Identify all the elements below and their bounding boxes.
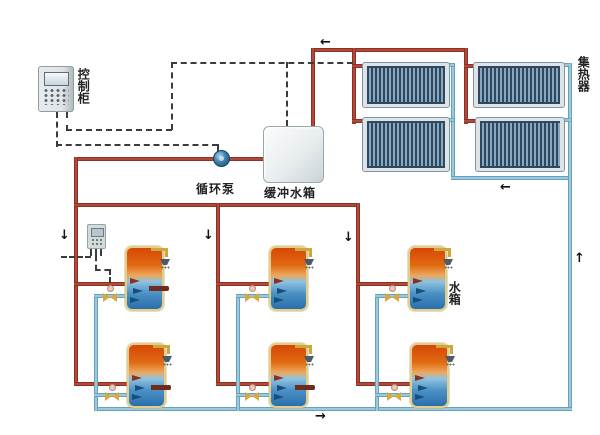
valve: [245, 285, 259, 302]
hot-inflow-arrow: [274, 375, 284, 381]
hot-inflow-arrow: [413, 278, 423, 284]
wall-controller-keys: [91, 238, 103, 246]
shower-icon: [295, 343, 317, 371]
tank-outlet-stub: [295, 385, 315, 390]
water-wave: [133, 288, 143, 294]
hot-pipe-left-riser: [74, 157, 78, 386]
control-wire: [90, 249, 92, 256]
label-circulation-pump: 循环泵: [196, 180, 235, 197]
label-control-cabinet: 控制柜: [76, 68, 89, 104]
hot-inflow-arrow: [274, 278, 284, 284]
hot-pipe-branch-tank: [74, 382, 132, 386]
shower-icon: [434, 246, 456, 274]
valve: [387, 384, 401, 401]
solar-collector-panel: [362, 62, 450, 108]
hot-inflow-arrow: [132, 375, 142, 381]
flow-arrow-down: ↓: [343, 231, 354, 244]
valve: [385, 285, 399, 302]
tank-outlet-stub: [151, 385, 171, 390]
control-wire: [95, 269, 110, 271]
control-wire-to-pump: [56, 144, 218, 146]
flow-arrow-left: ←: [500, 181, 511, 194]
collector-tubes: [480, 121, 560, 168]
solar-collector-panel: [362, 117, 450, 172]
water-wave: [130, 297, 140, 303]
flow-arrow-left: ←: [320, 36, 331, 49]
valve: [103, 285, 117, 302]
solar-collector-panel: [473, 62, 565, 108]
hot-pipe-collector-left-drop: [352, 48, 356, 124]
circulation-pump: [213, 150, 230, 167]
control-wire-to-pipe-sensor: [61, 256, 91, 258]
water-wave: [415, 394, 425, 400]
wall-controller: [87, 224, 106, 249]
shower-icon: [295, 246, 317, 274]
flow-arrow-down: ↓: [59, 229, 70, 242]
hot-pipe-pump-line: [74, 157, 264, 161]
cold-pipe-right-main: [568, 63, 572, 411]
hot-pipe-branch-tank: [356, 382, 415, 386]
control-wire: [171, 62, 173, 130]
shower-icon: [151, 246, 173, 274]
cabinet-screen: [44, 72, 69, 86]
buffer-tank: [263, 126, 324, 183]
tank-outlet-stub: [149, 286, 169, 291]
control-wire: [56, 112, 58, 147]
hot-pipe-collector-supply-top: [312, 48, 468, 52]
diagram-canvas: ← ↓ ↓ ↓ ← ↑ → 控制柜 循环泵 缓冲水箱 集热器 水箱: [0, 0, 600, 435]
solar-collector-panel: [475, 117, 565, 172]
control-wire: [95, 249, 97, 256]
hot-inflow-arrow: [415, 375, 425, 381]
flow-arrow-up: ↑: [574, 252, 585, 265]
hot-pipe-branch-tank: [74, 282, 130, 286]
flow-arrow-right: →: [315, 410, 326, 423]
wall-controller-screen: [91, 228, 104, 237]
cold-pipe-bottom-header: [94, 407, 572, 411]
control-wire-to-buffer-sensor: [286, 62, 288, 126]
control-wire: [66, 129, 172, 131]
hot-pipe-buffer-riser: [311, 48, 315, 128]
hot-pipe-middle-riser: [216, 203, 220, 386]
water-wave: [418, 385, 428, 391]
water-wave: [416, 288, 426, 294]
collector-tubes: [367, 121, 445, 168]
control-wire-to-collector-sensor: [171, 62, 353, 64]
hot-pipe-right-riser: [356, 203, 360, 386]
hot-pipe-collector-right-drop: [464, 48, 468, 124]
label-water-tank: 水箱: [447, 281, 460, 305]
water-wave: [277, 385, 287, 391]
water-wave: [274, 297, 284, 303]
control-wire: [95, 256, 97, 270]
cabinet-keypad: [43, 88, 69, 105]
control-wire: [100, 249, 102, 256]
flow-arrow-down: ↓: [203, 229, 214, 242]
cold-pipe-collector-bottom: [451, 176, 572, 180]
label-solar-collector: 集热器: [576, 56, 589, 92]
collector-tubes: [367, 66, 445, 104]
shower-icon: [153, 343, 175, 371]
label-buffer-tank: 缓冲水箱: [264, 184, 316, 201]
water-wave: [274, 394, 284, 400]
valve: [245, 384, 259, 401]
water-wave: [132, 394, 142, 400]
water-wave: [413, 297, 423, 303]
water-wave: [135, 385, 145, 391]
hot-inflow-arrow: [130, 278, 140, 284]
control-cabinet: [38, 66, 74, 112]
water-wave: [277, 288, 287, 294]
shower-icon: [436, 343, 458, 371]
collector-tubes: [478, 66, 560, 104]
valve: [105, 384, 119, 401]
